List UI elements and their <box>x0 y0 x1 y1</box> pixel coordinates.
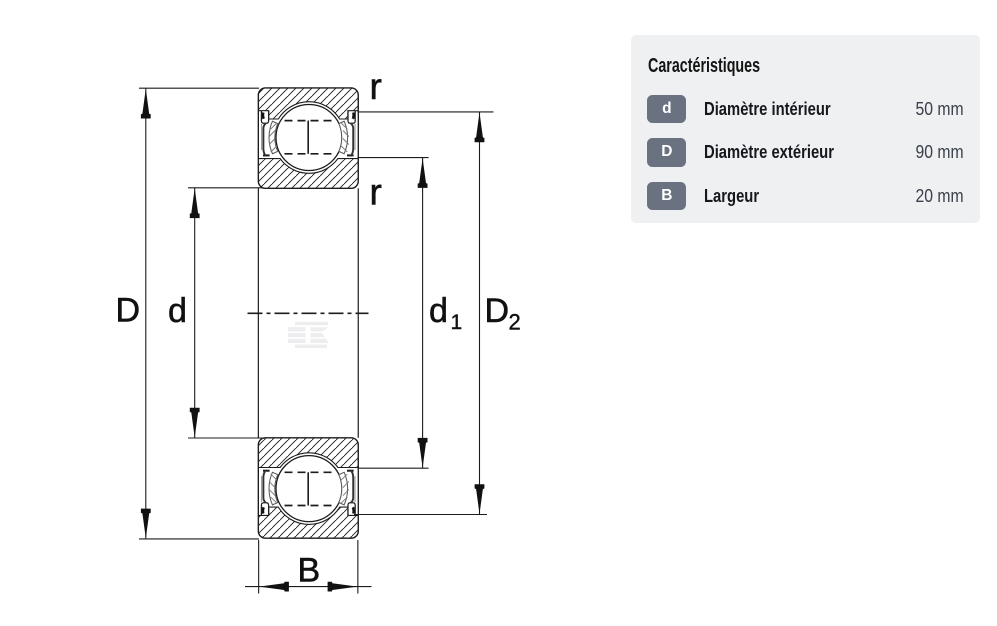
svg-text:D: D <box>485 292 510 330</box>
svg-text:r: r <box>370 172 382 213</box>
svg-text:1: 1 <box>451 311 463 334</box>
svg-text:B: B <box>298 552 321 590</box>
svg-text:d: d <box>429 292 448 330</box>
svg-text:D: D <box>116 292 141 330</box>
svg-text:r: r <box>370 66 382 107</box>
svg-text:d: d <box>168 292 187 330</box>
svg-text:2: 2 <box>509 310 521 335</box>
